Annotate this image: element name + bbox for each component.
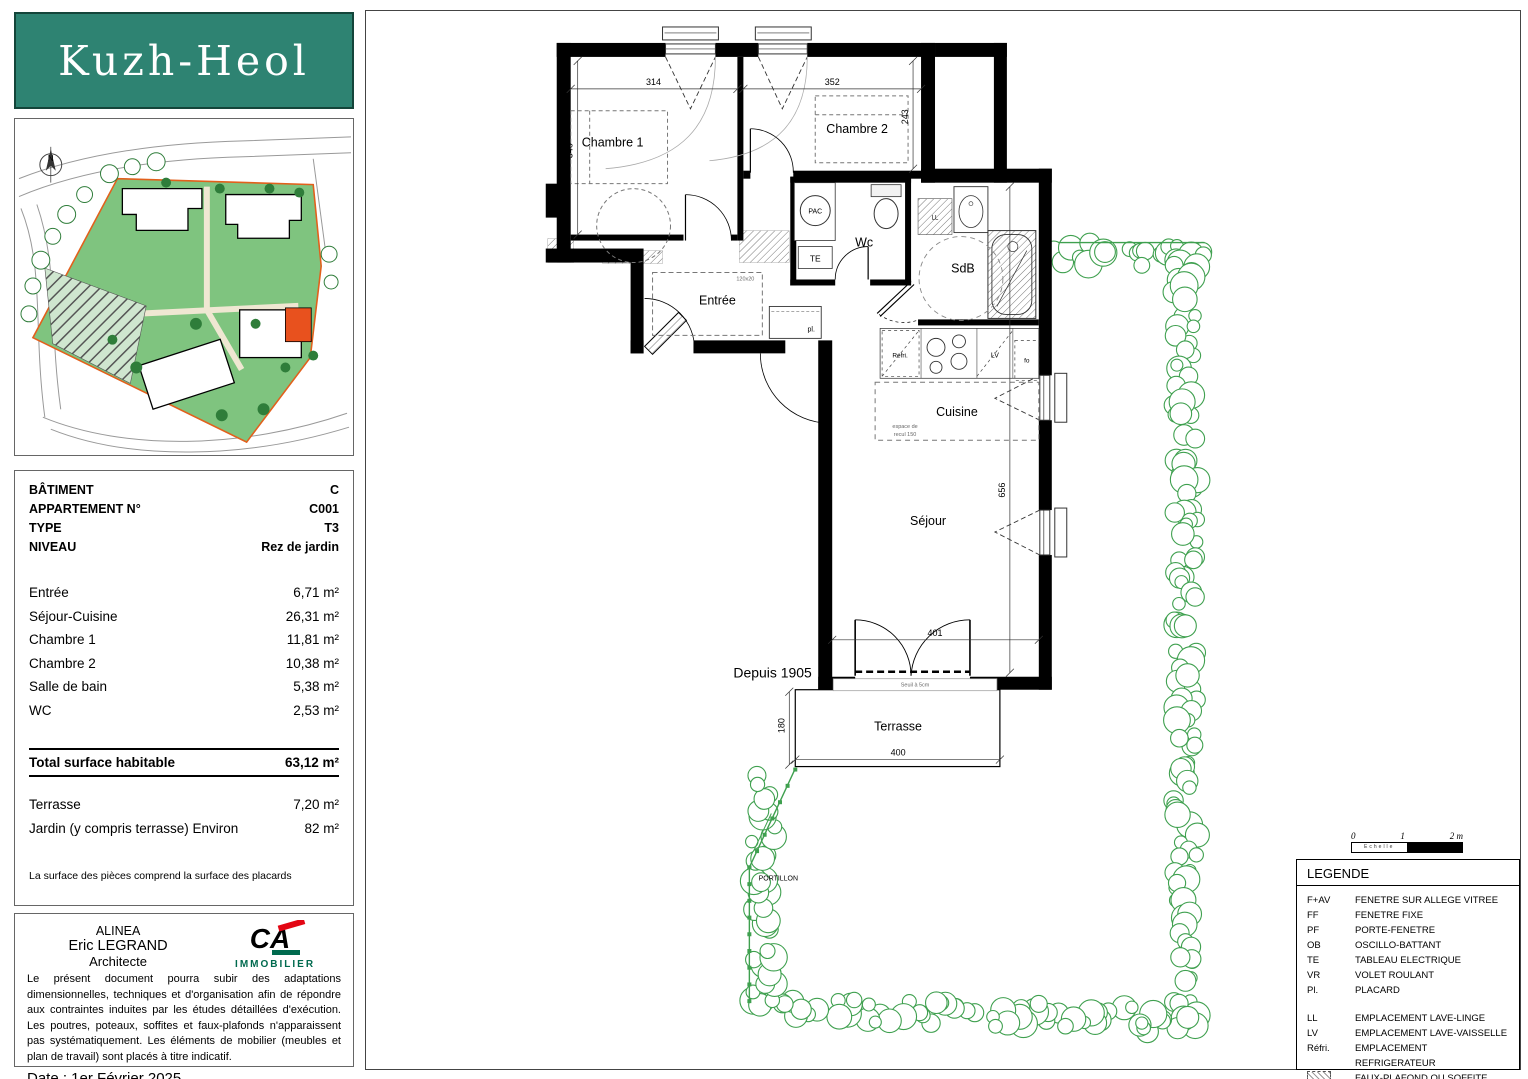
info-label: NIVEAU [29, 540, 76, 559]
extra-area-row: Terrasse 7,20 m² [29, 797, 339, 821]
architect-name: Eric LEGRAND [27, 939, 209, 954]
legend-desc: VOLET ROULANT [1355, 968, 1434, 983]
room-label: WC [29, 703, 52, 727]
info-value: Rez de jardin [261, 540, 339, 559]
extra-label: Jardin (y compris terrasse) Environ [29, 821, 238, 845]
room-label: Chambre 2 [29, 656, 96, 680]
te-label: TE [810, 254, 821, 264]
legend-abbr: Réfri. [1307, 1041, 1355, 1071]
architect-role: Architecte [27, 954, 209, 969]
toilet-icon [871, 185, 901, 229]
site-plan: N [14, 118, 354, 456]
dim-baie-w: 401 [928, 628, 943, 638]
legend-row: TE TABLEAU ELECTRIQUE [1307, 953, 1509, 968]
extra-label: Terrasse [29, 797, 81, 821]
legend-row: OB OSCILLO-BATTANT [1307, 938, 1509, 953]
legal-disclaimer: Le présent document pourra subir des ada… [27, 972, 341, 1065]
room-area-row: Salle de bain 5,38 m² [29, 679, 339, 703]
legend-row: LL EMPLACEMENT LAVE-LINGE [1307, 1011, 1509, 1026]
room-area-row: Chambre 1 11,81 m² [29, 632, 339, 656]
espace-note-2: recul 150 [894, 432, 917, 438]
extra-area-row: Jardin (y compris terrasse) Environ 82 m… [29, 821, 339, 845]
legend-row: Réfri. EMPLACEMENT REFRIGERATEUR [1307, 1041, 1509, 1071]
refri-label: Réfri. [892, 352, 908, 359]
washbasin-icon [954, 187, 988, 233]
hall-closet: pl. [769, 306, 821, 338]
room-label: Entrée [29, 585, 69, 609]
legend-desc: EMPLACEMENT LAVE-VAISSELLE [1355, 1026, 1507, 1041]
pac-label: PAC [808, 209, 822, 216]
legend-abbr: VR [1307, 968, 1355, 983]
cuisine-label: Cuisine [936, 405, 978, 419]
info-header-row: NIVEAU Rez de jardin [29, 540, 339, 559]
room-label: Salle de bain [29, 679, 107, 703]
room-area-row: WC 2,53 m² [29, 703, 339, 727]
surface-footnote: La surface des pièces comprend la surfac… [29, 870, 339, 882]
entree-label: Entrée [699, 293, 736, 307]
portillon-label: PORTILLON [759, 875, 798, 882]
page: Kuzh-Heol [0, 0, 1528, 1079]
fo-label: fo [1024, 357, 1030, 364]
scale-2: 2 m [1450, 831, 1463, 841]
extra-area-rows: Terrasse 7,20 m² Jardin (y compris terra… [29, 797, 339, 844]
wc-label: Wc [855, 236, 873, 250]
extra-value: 82 m² [304, 821, 339, 845]
dim-sejour-h: 656 [997, 483, 1007, 498]
info-label: APPARTEMENT N° [29, 502, 141, 521]
legend-abbr: FF [1307, 908, 1355, 923]
watermark-text: Depuis 1905 [733, 665, 812, 681]
terrasse-label: Terrasse [874, 720, 922, 734]
architect-panel: ALINEA Eric LEGRAND Architecte CA IMMOBI… [14, 913, 354, 1067]
fixtures: PAC TE LL [794, 183, 1036, 321]
legend-row: PF PORTE-FENETRE [1307, 923, 1509, 938]
legend-abbr: OB [1307, 938, 1355, 953]
placard-size-note: 120x20 [736, 276, 754, 282]
scale-0: 0 [1351, 831, 1356, 841]
total-area-row: Total surface habitable 63,12 m² [29, 748, 339, 777]
legend-abbr: TE [1307, 953, 1355, 968]
french-door [833, 620, 997, 691]
room-label: Chambre 1 [29, 632, 96, 656]
info-label: TYPE [29, 521, 62, 540]
chambre2-label: Chambre 2 [826, 122, 888, 136]
legend-group-2: LL EMPLACEMENT LAVE-LINGE LV EMPLACEMENT… [1307, 1011, 1509, 1071]
dim-terrasse-w: 400 [891, 748, 906, 758]
room-area: 11,81 m² [287, 632, 339, 656]
site-plan-svg: N [15, 119, 353, 455]
chambre1-label: Chambre 1 [582, 136, 644, 150]
project-title: Kuzh-Heol [58, 37, 310, 85]
bathtub-icon [988, 231, 1036, 319]
info-header-row: TYPE T3 [29, 521, 339, 540]
compass-icon: N [40, 147, 62, 183]
developer-brand: CA IMMOBILIER [209, 920, 341, 970]
legend-desc: TABLEAU ELECTRIQUE [1355, 953, 1461, 968]
document-date: Date : 1er Février 2025 [27, 1070, 341, 1079]
legend-abbr: Pl. [1307, 983, 1355, 998]
sejour-label: Séjour [910, 514, 946, 528]
legend-row: LV EMPLACEMENT LAVE-VAISSELLE [1307, 1026, 1509, 1041]
room-area: 26,31 m² [286, 609, 339, 633]
legend-desc: PLACARD [1355, 983, 1400, 998]
room-area-row: Séjour-Cuisine 26,31 m² [29, 609, 339, 633]
sdb-label: SdB [951, 262, 975, 276]
room-label: Séjour-Cuisine [29, 609, 118, 633]
ll-label: LL [932, 216, 939, 222]
svg-text:N: N [48, 154, 54, 163]
legend-desc: EMPLACEMENT LAVE-LINGE [1355, 1011, 1485, 1026]
legend-desc: FENETRE SUR ALLEGE VITREE [1355, 893, 1498, 908]
legend-panel: LEGENDE F+AV FENETRE SUR ALLEGE VITREE F… [1296, 859, 1520, 1070]
room-area: 6,71 m² [293, 585, 339, 609]
legend-desc: PORTE-FENETRE [1355, 923, 1435, 938]
info-value: T3 [324, 521, 339, 540]
scale-bar: 0 1 2 m Echelle [1351, 831, 1463, 853]
dim-chambre2-h: 243 [900, 109, 910, 124]
legend-abbr: LL [1307, 1011, 1355, 1026]
total-label: Total surface habitable [29, 755, 175, 770]
seuil-note: Seuil à 5cm [901, 683, 930, 689]
info-value: C001 [309, 502, 339, 521]
legend-abbr: F+AV [1307, 893, 1355, 908]
dim-chambre1-h: 346 [565, 143, 575, 158]
legend-abbr: LV [1307, 1026, 1355, 1041]
legend-row: Pl. PLACARD [1307, 983, 1509, 998]
info-header-row: BÂTIMENT C [29, 483, 339, 502]
scale-label: Echelle [1352, 843, 1408, 852]
legend-desc: OSCILLO-BATTANT [1355, 938, 1441, 953]
scale-solid [1408, 843, 1463, 852]
dim-chambre1-w: 314 [646, 77, 661, 87]
ca-logo-icon: CA [240, 920, 310, 956]
apartment-info-panel: BÂTIMENT C APPARTEMENT N° C001 TYPE T3 N… [14, 470, 354, 906]
dim-chambre2-w: 352 [825, 77, 840, 87]
legend-group-1: F+AV FENETRE SUR ALLEGE VITREE FF FENETR… [1307, 893, 1509, 998]
info-value: C [330, 483, 339, 502]
room-area: 10,38 m² [286, 656, 339, 680]
info-header-row: APPARTEMENT N° C001 [29, 502, 339, 521]
room-area-row: Entrée 6,71 m² [29, 585, 339, 609]
dim-terrasse-h: 180 [776, 718, 786, 733]
legend-row: FF FENETRE FIXE [1307, 908, 1509, 923]
lv-label: LV [991, 352, 999, 359]
legend-row: VR VOLET ROULANT [1307, 968, 1509, 983]
legend-row-faux: FAUX-PLAFOND OU SOFFITE [1307, 1071, 1509, 1079]
room-area-rows: Entrée 6,71 m² Séjour-Cuisine 26,31 m² C… [29, 585, 339, 726]
highlighted-unit [285, 308, 311, 342]
legend-desc: EMPLACEMENT REFRIGERATEUR [1355, 1041, 1509, 1071]
info-header-rows: BÂTIMENT C APPARTEMENT N° C001 TYPE T3 N… [29, 483, 339, 559]
faux-plafond-swatch [1307, 1071, 1355, 1079]
scale-1: 1 [1400, 831, 1405, 841]
info-label: BÂTIMENT [29, 483, 94, 502]
brand-word: IMMOBILIER [209, 959, 341, 970]
legend-abbr: PF [1307, 923, 1355, 938]
architect-identity: ALINEA Eric LEGRAND Architecte [27, 920, 209, 970]
total-value: 63,12 m² [285, 755, 339, 770]
project-logo: Kuzh-Heol [14, 12, 354, 109]
room-area: 2,53 m² [293, 703, 339, 727]
legend-desc: FENETRE FIXE [1355, 908, 1423, 923]
architect-firm: ALINEA [27, 924, 209, 939]
legend-desc: FAUX-PLAFOND OU SOFFITE [1355, 1071, 1488, 1079]
pl-label: pl. [808, 326, 815, 333]
floor-plan-panel: Depuis 1905 PORTILLON Terrasse [365, 10, 1521, 1070]
legend-title: LEGENDE [1297, 860, 1519, 886]
room-area-row: Chambre 2 10,38 m² [29, 656, 339, 680]
legend-row: F+AV FENETRE SUR ALLEGE VITREE [1307, 893, 1509, 908]
extra-value: 7,20 m² [293, 797, 339, 821]
room-area: 5,38 m² [293, 679, 339, 703]
espace-note-1: espace de [892, 424, 917, 430]
